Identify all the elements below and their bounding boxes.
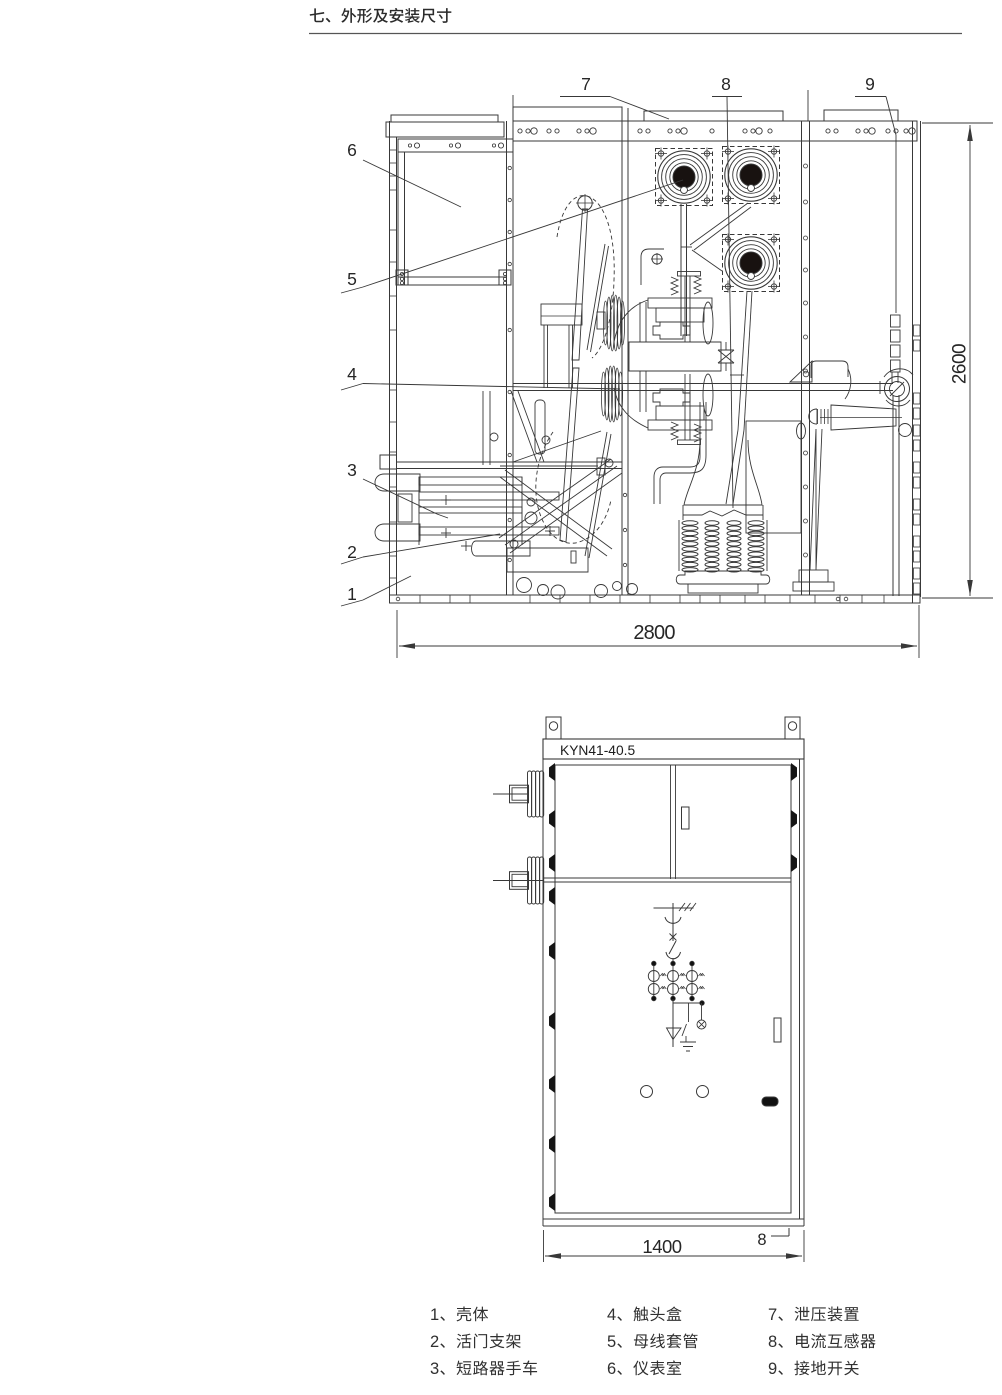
svg-text:6: 6: [607, 1360, 616, 1378]
svg-text:KYN41-40.5: KYN41-40.5: [560, 743, 635, 758]
svg-text:5: 5: [347, 269, 357, 289]
svg-text:7: 7: [581, 74, 591, 94]
svg-text:9: 9: [768, 1360, 777, 1378]
svg-text:6: 6: [347, 140, 357, 160]
svg-text:1400: 1400: [642, 1236, 681, 1257]
svg-text:3: 3: [430, 1360, 439, 1378]
svg-text:9: 9: [865, 74, 875, 94]
svg-text:8: 8: [757, 1231, 766, 1249]
svg-text:1: 1: [347, 584, 357, 604]
svg-text:4: 4: [347, 364, 357, 384]
svg-text:2600: 2600: [950, 344, 971, 384]
svg-text:7: 7: [768, 1306, 777, 1324]
svg-text:8: 8: [721, 74, 731, 94]
svg-text:8: 8: [768, 1333, 777, 1351]
svg-text:5: 5: [607, 1333, 616, 1351]
svg-text:2800: 2800: [633, 622, 675, 644]
svg-text:2: 2: [430, 1333, 439, 1351]
svg-text:4: 4: [607, 1306, 616, 1324]
svg-text:3: 3: [347, 460, 357, 480]
svg-text:1: 1: [430, 1306, 439, 1324]
